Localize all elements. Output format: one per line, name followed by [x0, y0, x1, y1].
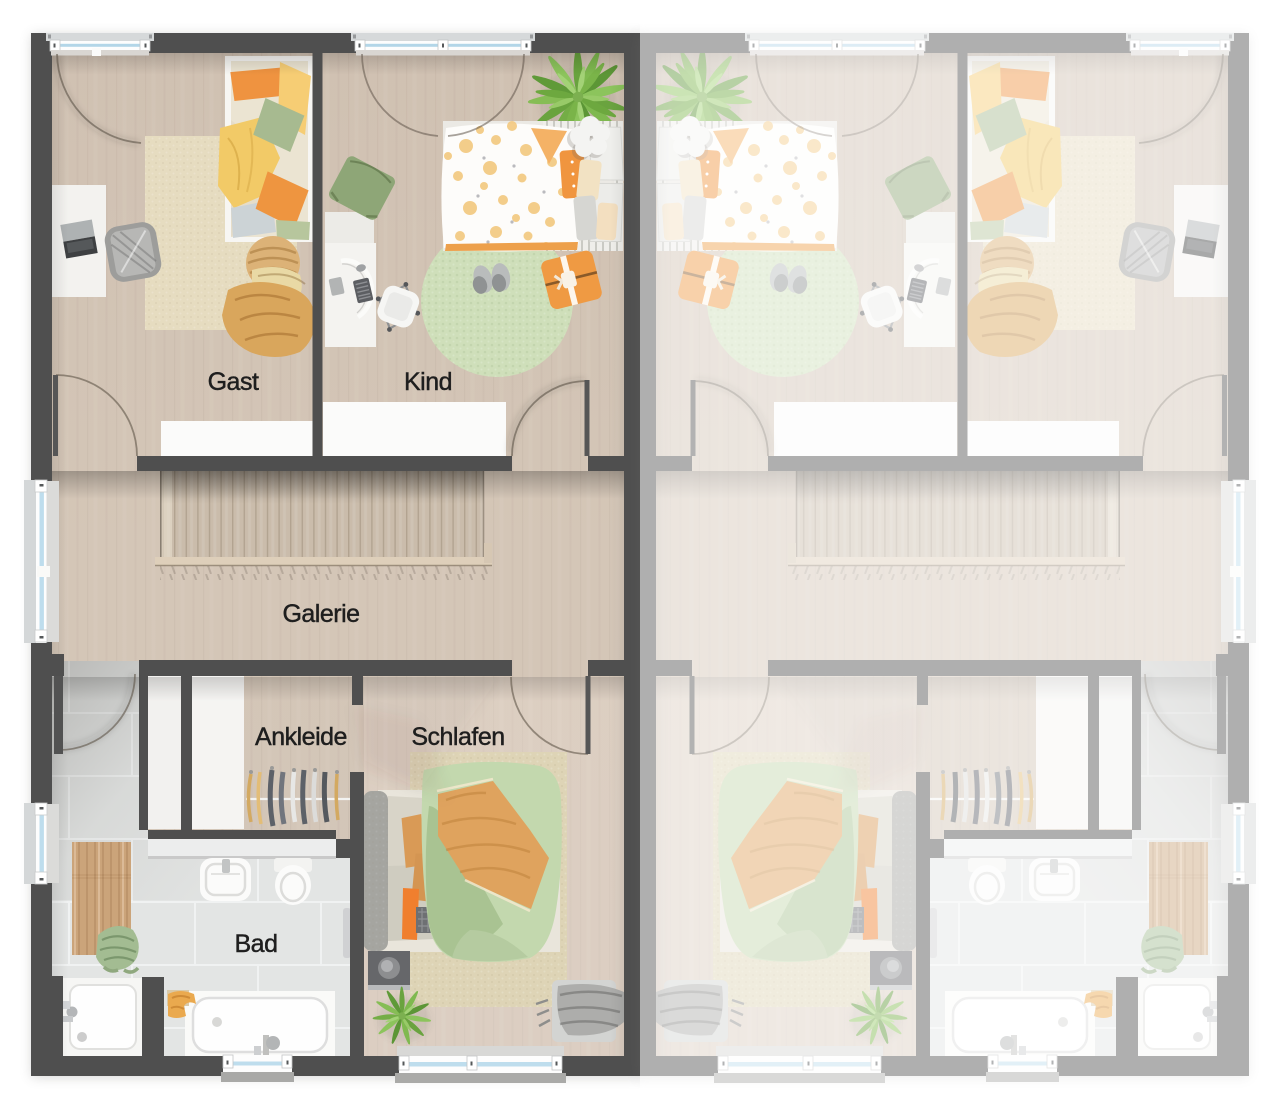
svg-text:Schlafen: Schlafen [411, 723, 504, 751]
svg-text:Kind: Kind [404, 368, 452, 396]
svg-text:Galerie: Galerie [282, 600, 359, 628]
svg-text:Ankleide: Ankleide [255, 723, 347, 751]
svg-text:Bad: Bad [235, 930, 278, 958]
svg-text:Gast: Gast [208, 368, 259, 396]
